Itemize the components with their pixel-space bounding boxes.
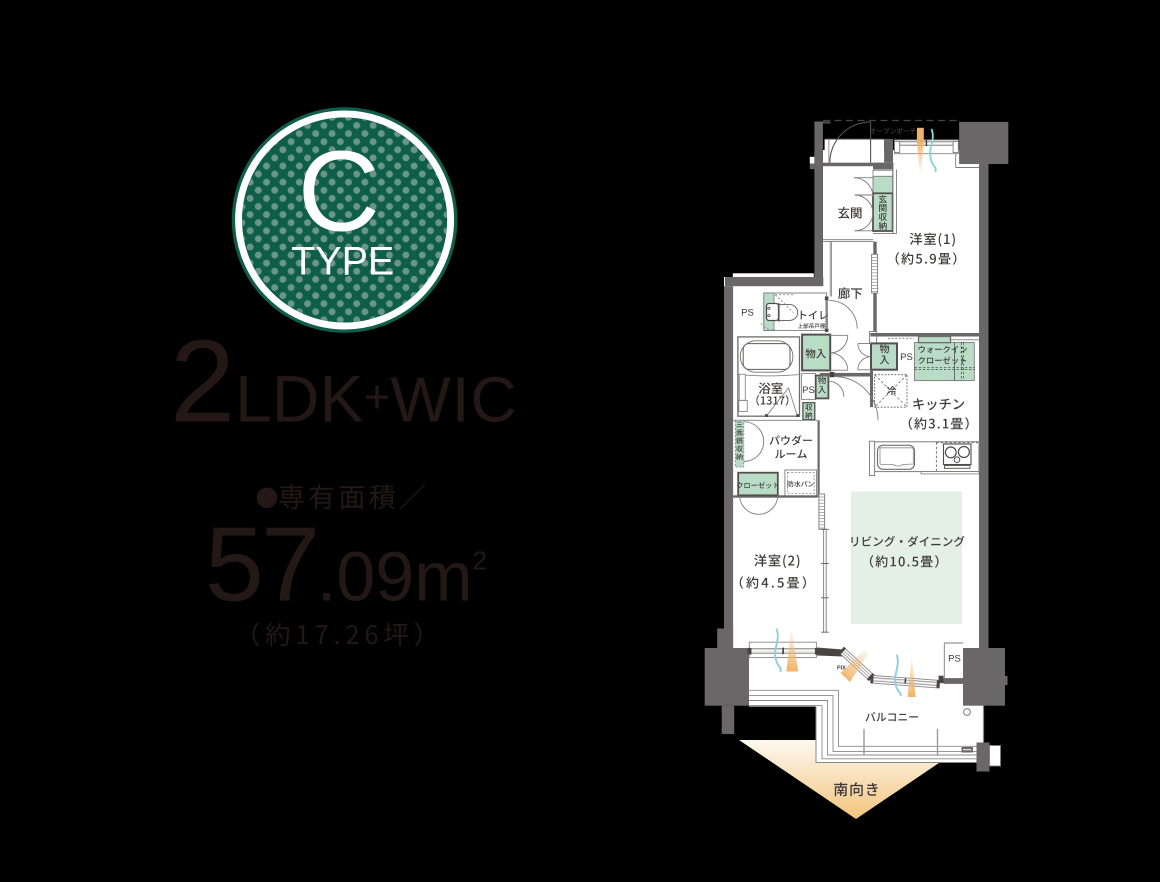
svg-text:C: C [298,129,380,256]
svg-text:TYPE: TYPE [291,240,394,284]
